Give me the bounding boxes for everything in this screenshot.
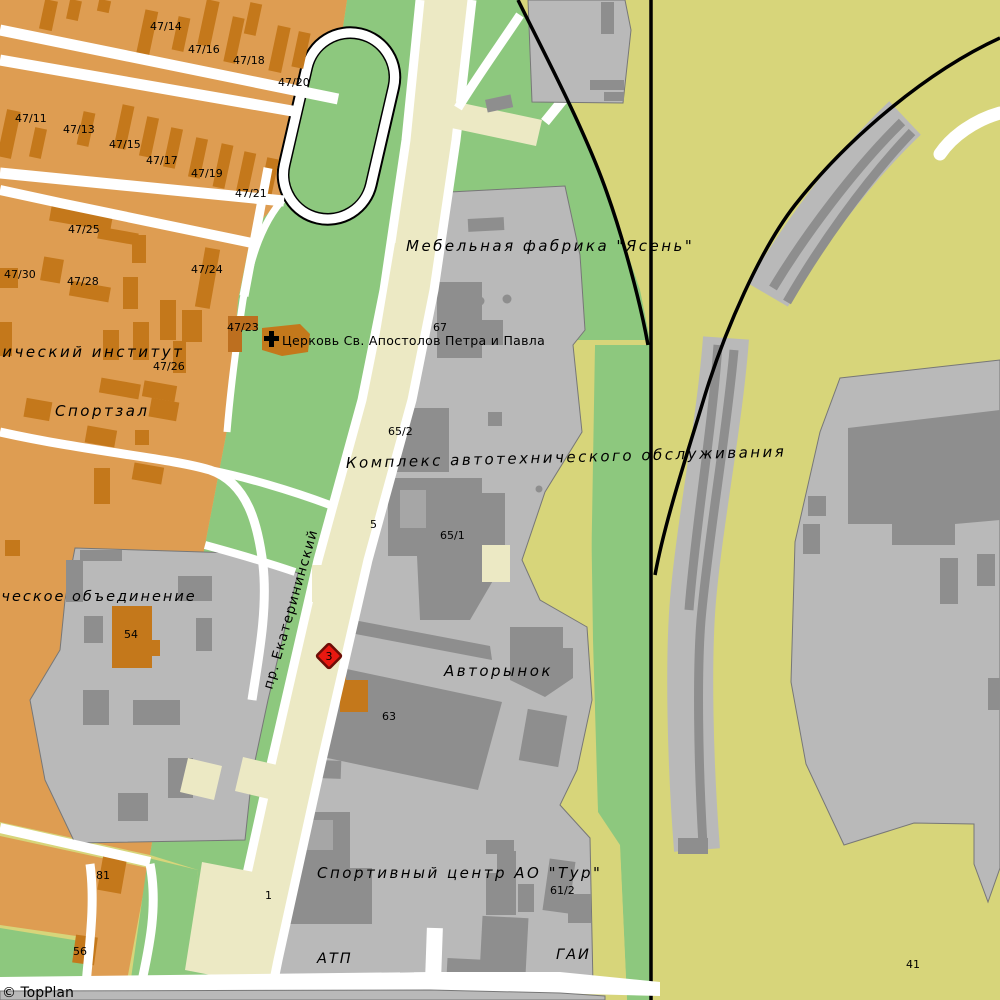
building xyxy=(182,310,202,342)
house-number: 47/20 xyxy=(278,76,310,89)
bottom-block xyxy=(0,990,605,1000)
building xyxy=(84,616,103,643)
house-number: 65/1 xyxy=(440,529,465,542)
building xyxy=(590,80,624,90)
building xyxy=(83,690,109,725)
house-number: 56 xyxy=(73,945,87,958)
house-number: 47/18 xyxy=(233,54,265,67)
building xyxy=(94,468,110,504)
building xyxy=(940,558,958,604)
house-number: 47/30 xyxy=(4,268,36,281)
place-label-church: Церковь Св. Апостолов Петра и Павла xyxy=(282,333,545,348)
place-label-carmarket: Авторынок xyxy=(443,662,553,680)
house-number: 47/21 xyxy=(235,187,267,200)
house-number: 47/16 xyxy=(188,43,220,56)
sidewalk-strip xyxy=(312,565,340,602)
building xyxy=(604,92,624,101)
building xyxy=(568,894,591,923)
building xyxy=(803,524,820,554)
house-number: 47/19 xyxy=(191,167,223,180)
building xyxy=(118,793,148,821)
house-number: 54 xyxy=(124,628,138,641)
building xyxy=(80,550,122,561)
building xyxy=(468,217,505,232)
sidewalk-strip xyxy=(482,545,510,582)
place-label-factory: Мебельная фабрика "Ясень" xyxy=(406,237,694,255)
building xyxy=(518,884,534,912)
building xyxy=(160,300,176,340)
building xyxy=(123,277,138,309)
place-label-gai: ГАИ xyxy=(556,947,591,963)
house-number: 47/25 xyxy=(68,223,100,236)
tank xyxy=(503,295,512,304)
building xyxy=(808,496,826,516)
building xyxy=(132,235,146,263)
place-label-atp: АТП xyxy=(316,951,353,967)
house-number: 47/15 xyxy=(109,138,141,151)
house-number: 47/28 xyxy=(67,275,99,288)
place-label-sporthall: Спортзал xyxy=(55,402,149,420)
house-number: 1 xyxy=(265,889,272,902)
building xyxy=(196,618,212,651)
house-number: 81 xyxy=(96,869,110,882)
house-number: 61/2 xyxy=(550,884,575,897)
place-label-institute: нический институт xyxy=(0,343,184,361)
house-number: 47/11 xyxy=(15,112,47,125)
place-label-association: ическое объединение xyxy=(0,589,197,605)
house-number: 47/17 xyxy=(146,154,178,167)
road xyxy=(425,928,443,979)
attribution: © TopPlan xyxy=(2,985,74,1000)
poi-marker-label: 3 xyxy=(326,650,333,663)
house-number: 63 xyxy=(382,710,396,723)
platform-building xyxy=(678,838,708,854)
tank xyxy=(476,297,485,306)
house-number: 47/14 xyxy=(150,20,182,33)
building xyxy=(601,2,614,34)
house-number: 65/2 xyxy=(388,425,413,438)
building xyxy=(5,540,20,556)
house-number: 47/24 xyxy=(191,263,223,276)
place-label-sportcenter: Спортивный центр АО "Тур" xyxy=(317,864,602,882)
building xyxy=(977,554,995,586)
tank xyxy=(536,486,543,493)
house-number: 47/13 xyxy=(63,123,95,136)
house-number: 5 xyxy=(370,518,377,531)
building xyxy=(133,700,180,725)
building xyxy=(988,678,1000,710)
house-number: 47/26 xyxy=(153,360,185,373)
house-number: 47/23 xyxy=(227,321,259,334)
building xyxy=(135,430,149,445)
map-canvas[interactable]: 3 47/14 47/16 47/18 47/20 47/11 47/13 47… xyxy=(0,0,1000,1000)
house-number: 41 xyxy=(906,958,920,971)
building xyxy=(40,256,64,283)
building xyxy=(400,490,426,528)
building xyxy=(488,412,502,426)
